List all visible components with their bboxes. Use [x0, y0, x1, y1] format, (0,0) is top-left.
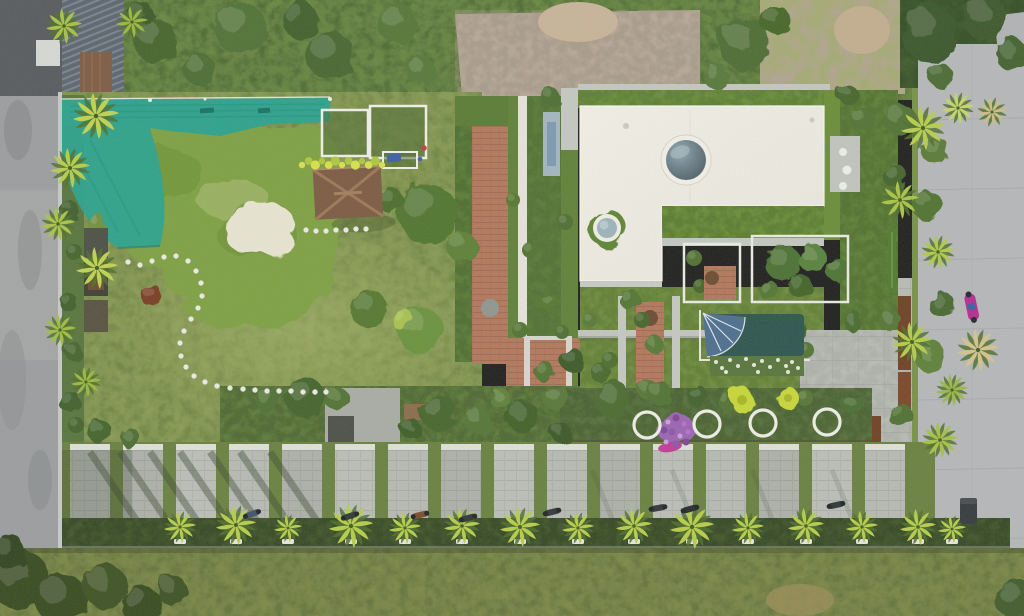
aerial-photo-canvas — [0, 0, 1024, 616]
aerial-photo: Top-down aerial drone photo of a tropica… — [0, 0, 1024, 616]
photo-grain — [0, 0, 1024, 616]
